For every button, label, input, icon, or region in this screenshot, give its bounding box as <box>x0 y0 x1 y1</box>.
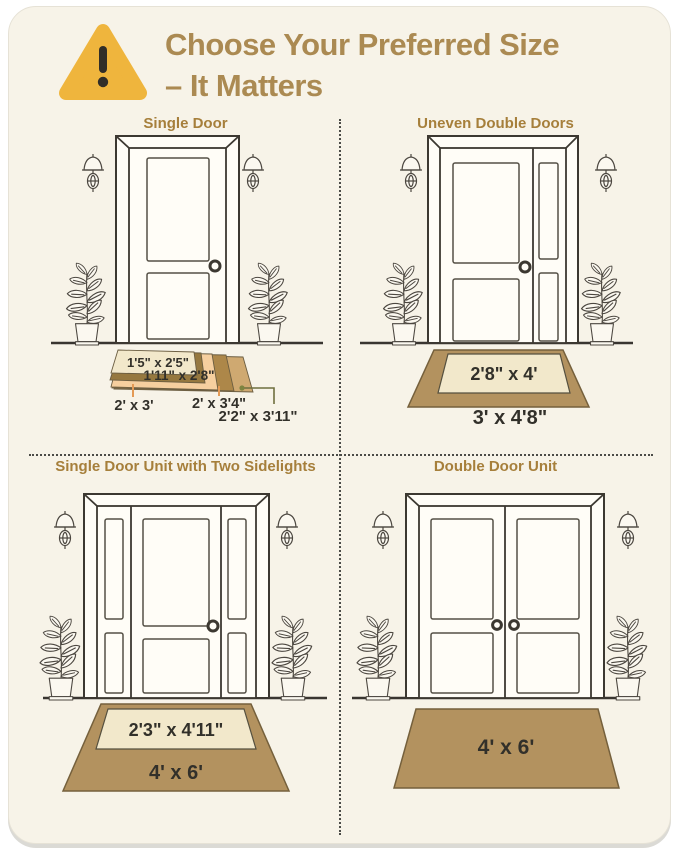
mat-size-label: 4' x 6' <box>478 736 535 759</box>
mat-size-label: 4' x 6' <box>149 762 203 784</box>
section-double-door-unit: Double Door Unit 4' x 6' <box>340 456 651 832</box>
page-title: Choose Your Preferred Size – It Matters <box>165 25 559 107</box>
page-title-line1: Choose Your Preferred Size <box>165 25 559 66</box>
section-uneven-double-doors: Uneven Double Doors 2'8" x 4' 3' x 4'8" <box>340 113 651 454</box>
single-door-sidelights-scene: 2'3" x 4'11" 4' x 6' <box>31 456 340 832</box>
mat-size-label: 2'2" x 3'11" <box>219 408 298 425</box>
section-single-door: Single Door <box>31 113 340 454</box>
potted-plant-icon <box>581 261 621 345</box>
double-door-scene: 4' x 6' <box>340 456 651 832</box>
mat-size-label: 2' x 3' <box>114 398 153 414</box>
mat-size-label: 2'3" x 4'11" <box>129 720 224 740</box>
mat-size-label: 3' x 4'8" <box>473 407 548 429</box>
mat-size-label: 1'11" x 2'8" <box>143 368 214 383</box>
potted-plant-icon <box>66 261 106 345</box>
wall-lamp-icon <box>595 154 617 192</box>
potted-plant-icon <box>357 614 398 700</box>
page-title-line2: – It Matters <box>165 66 559 107</box>
potted-plant-icon <box>248 261 288 345</box>
single-door-scene: 1'5" x 2'5" 1'11" x 2'8" 2' x 3' 2' x 3'… <box>31 113 340 454</box>
mat-size-label: 2'8" x 4' <box>470 364 537 384</box>
wall-lamp-icon <box>54 511 76 549</box>
wall-lamp-icon <box>276 511 298 549</box>
uneven-double-doors-scene: 2'8" x 4' 3' x 4'8" <box>340 113 651 454</box>
potted-plant-icon <box>272 614 313 700</box>
wall-lamp-icon <box>617 511 639 549</box>
section-single-door-two-sidelights: Single Door Unit with Two Sidelights 2'3… <box>31 456 340 832</box>
infographic-card: Choose Your Preferred Size – It Matters … <box>8 6 671 844</box>
wall-lamp-icon <box>400 154 422 192</box>
leader-dot <box>239 385 244 390</box>
warning-triangle-icon <box>59 21 147 109</box>
wall-lamp-icon <box>372 511 394 549</box>
potted-plant-icon <box>383 261 423 345</box>
wall-lamp-icon <box>82 154 104 192</box>
potted-plant-icon <box>40 614 81 700</box>
wall-lamp-icon <box>242 154 264 192</box>
potted-plant-icon <box>607 614 648 700</box>
